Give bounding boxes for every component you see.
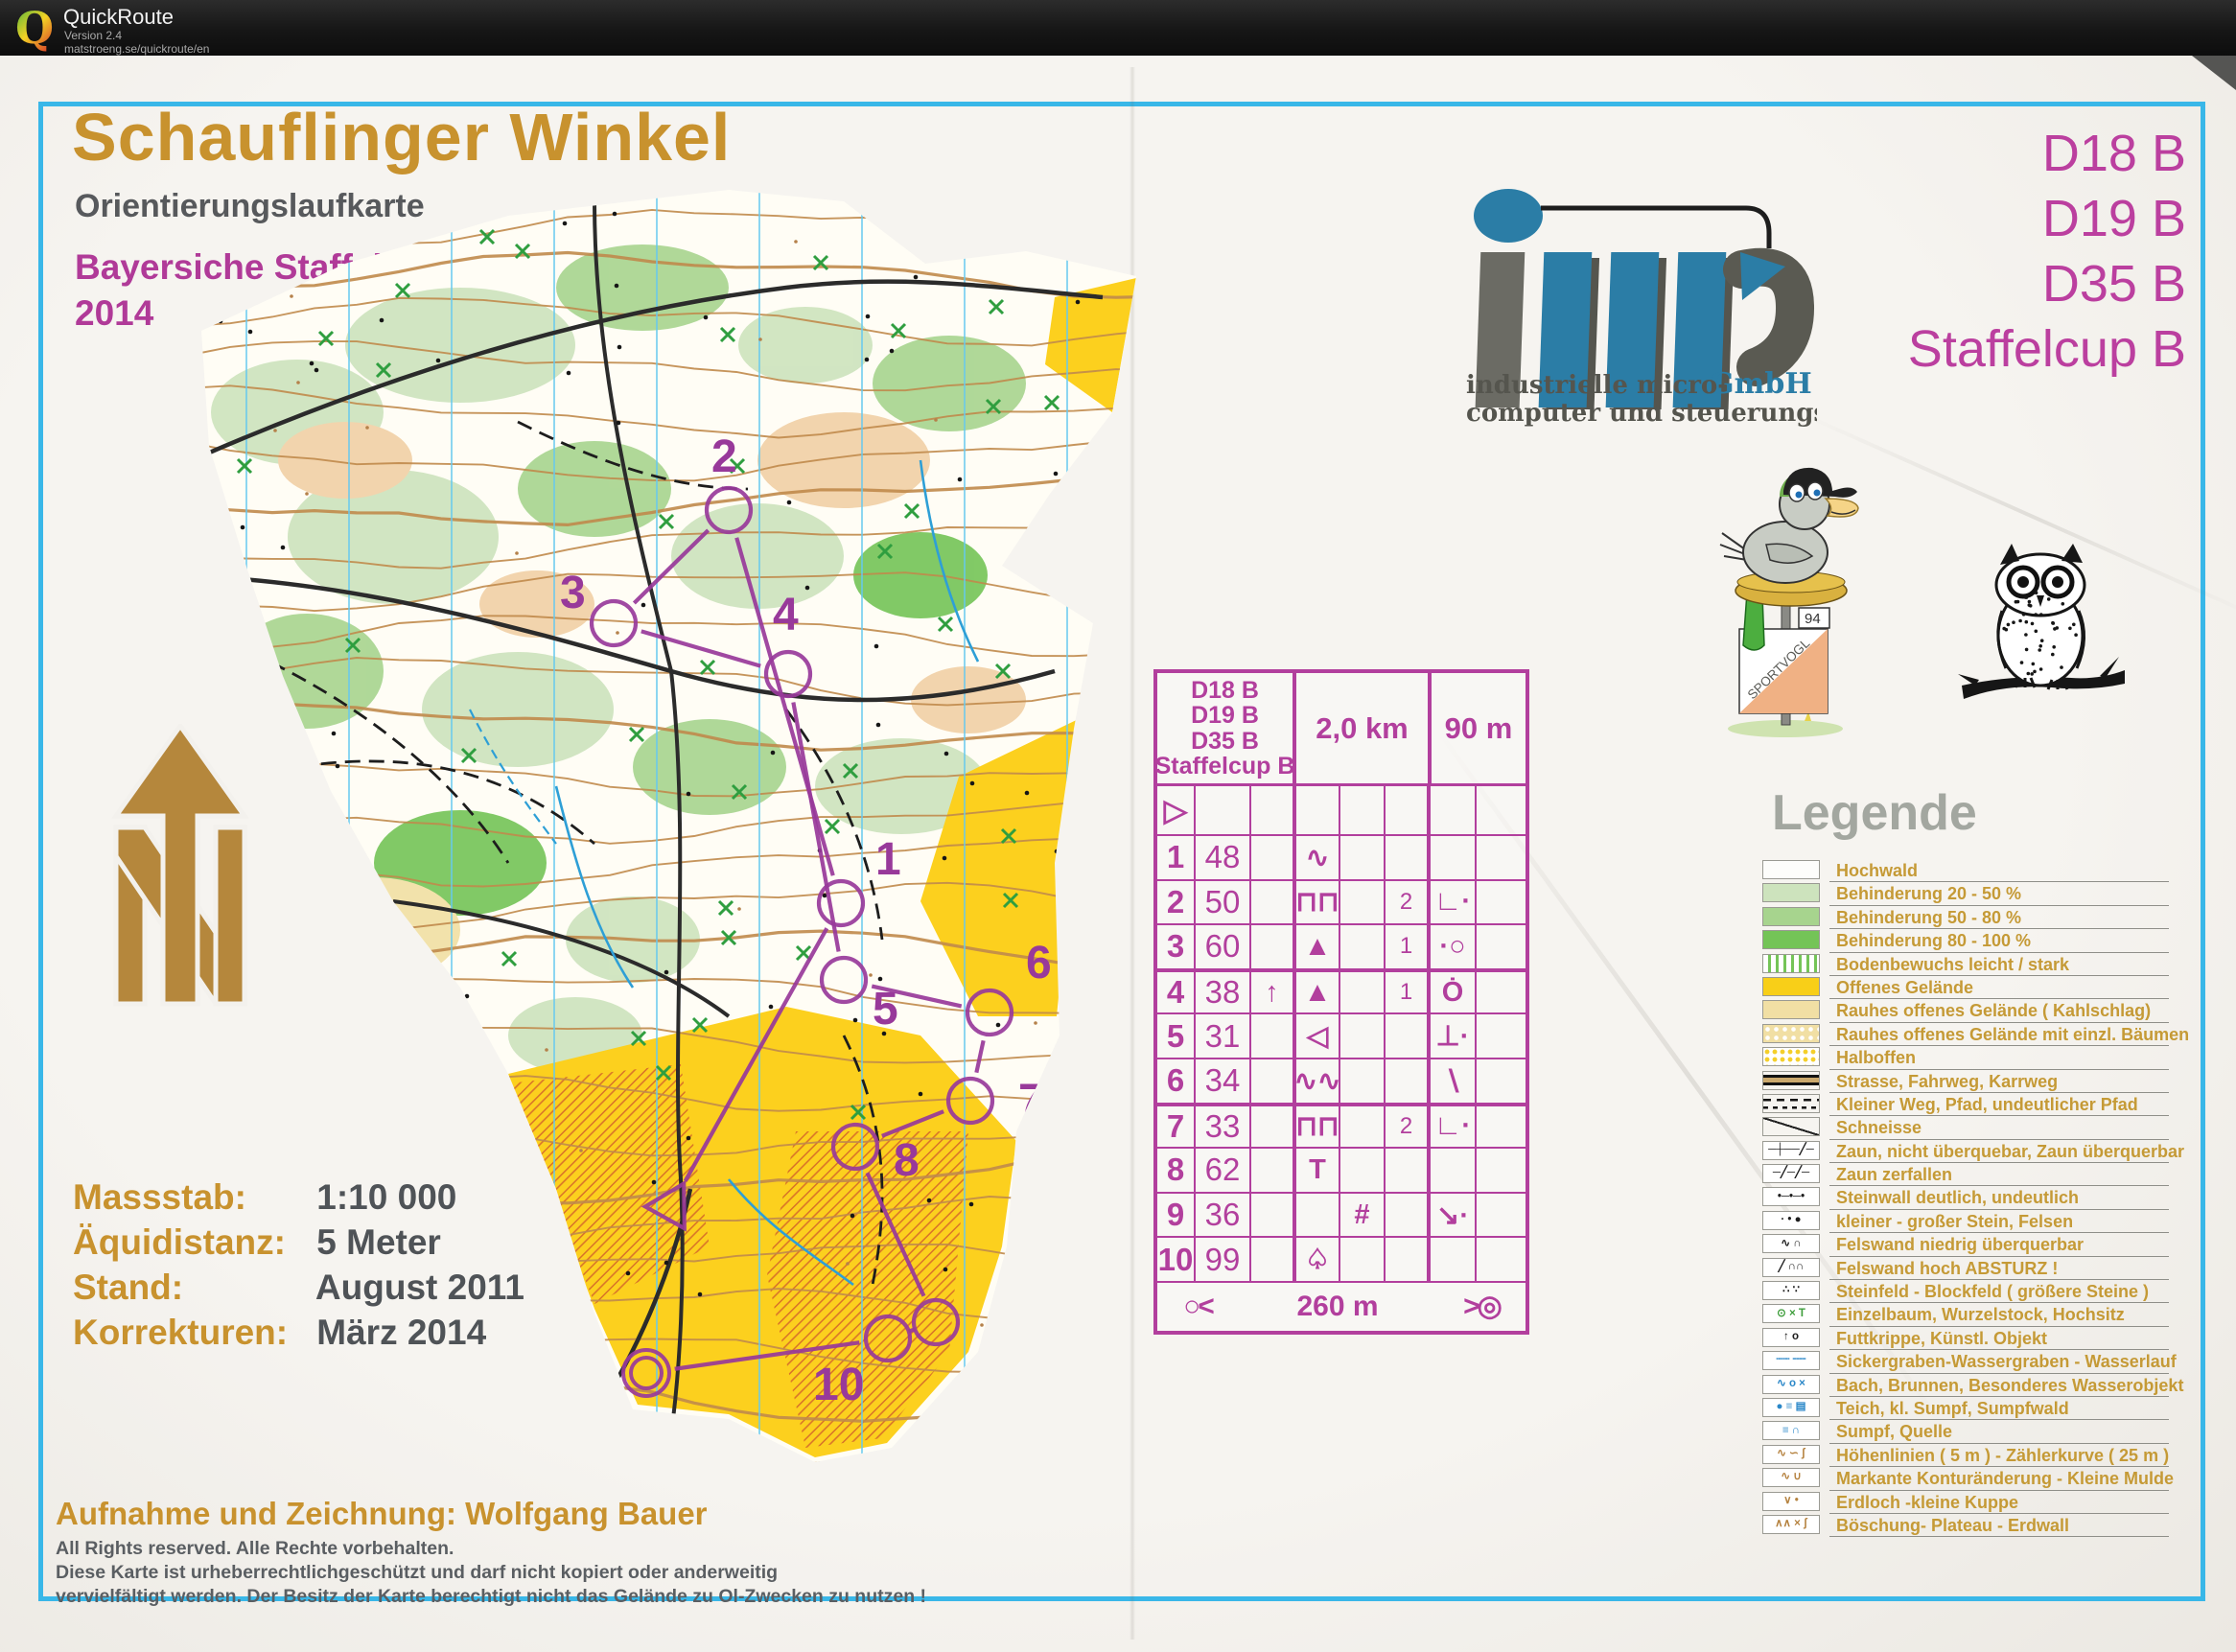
legend-swatch — [1762, 1047, 1820, 1066]
legend-label: Schneisse — [1836, 1118, 1922, 1138]
control-number: 5 — [1157, 1012, 1196, 1058]
class-label: D18 B — [1908, 121, 2186, 186]
symbol-cell-h — [1477, 879, 1526, 924]
svg-text:1: 1 — [875, 834, 901, 885]
legend-swatch: ∧∧ × ʃ — [1762, 1515, 1820, 1534]
app-url: matstroeng.se/quickroute/en — [64, 42, 209, 56]
legend-label: Felswand hoch ABSTURZ ! — [1836, 1259, 2058, 1279]
legend-swatch — [1762, 883, 1820, 902]
map-info-row: Äquidistanz: 5 Meter — [73, 1222, 524, 1268]
control-row: 2 50 ⊓⊓ 2 ∟· — [1157, 879, 1526, 924]
symbol-cell-d: ⊓⊓ — [1296, 879, 1340, 924]
quickroute-logo-icon: Q — [15, 2, 54, 54]
symbol-cell-h — [1477, 1192, 1526, 1237]
symbol-cell-h — [1477, 1147, 1526, 1192]
legend-swatch — [1762, 1094, 1820, 1113]
svg-text:5: 5 — [873, 984, 898, 1035]
info-label: Korrekturen: — [73, 1313, 307, 1353]
symbol-cell-e — [1340, 968, 1386, 1013]
control-row: 1 48 ∿ — [1157, 834, 1526, 879]
legend-item: ∿ ∽ ʃ Höhenlinien ( 5 m ) - Zählerkurve … — [1762, 1444, 2169, 1467]
map-info-row: Stand: August 2011 — [73, 1268, 524, 1313]
info-label: Stand: — [73, 1268, 307, 1308]
control-code: 62 — [1196, 1147, 1251, 1192]
legend-swatch — [1762, 1024, 1820, 1043]
legend-label: Sumpf, Quelle — [1836, 1422, 1952, 1442]
legend-label: Futtkrippe, Künstl. Objekt — [1836, 1329, 2047, 1349]
legend-swatch: ╱ ∩∩ — [1762, 1258, 1820, 1277]
legend-swatch: ≡ ∩ — [1762, 1421, 1820, 1440]
legend-item: Halboffen — [1762, 1046, 2169, 1069]
symbol-cell-c: ↑ — [1251, 968, 1296, 1013]
symbol-cell-d: ▲ — [1296, 923, 1340, 968]
control-number: 4 — [1157, 968, 1196, 1013]
legend-swatch: ─┼──╱─ — [1762, 1141, 1820, 1160]
class-label: D19 B — [1908, 186, 2186, 251]
ims-line2: computer und steuerungstechnik — [1466, 399, 1817, 427]
symbol-cell-e — [1340, 1103, 1386, 1148]
legend-item: Behinderung 80 - 100 % — [1762, 929, 2169, 952]
symbol-cell-g: ⊥· — [1431, 1012, 1477, 1058]
symbol-cell-c — [1251, 1236, 1296, 1281]
legend-swatch — [1762, 954, 1820, 973]
map-title: Schauflinger Winkel — [72, 99, 731, 175]
legend-label: Hochwald — [1836, 861, 1918, 881]
info-value: 1:10 000 — [316, 1177, 456, 1217]
legend-item: Rauhes offenes Gelände mit einzl. Bäumen — [1762, 1023, 2169, 1046]
symbol-cell-h — [1477, 968, 1526, 1013]
legend-label: Markante Konturänderung - Kleine Mulde — [1836, 1469, 2174, 1489]
copyright-block: All Rights reserved. Alle Rechte vorbeha… — [56, 1537, 926, 1609]
legend-swatch: ● ≡ ▤ — [1762, 1398, 1820, 1417]
symbol-cell-g — [1431, 1147, 1477, 1192]
legend-label: Behinderung 50 - 80 % — [1836, 908, 2021, 928]
symbol-cell-g: ↘· — [1431, 1192, 1477, 1237]
header-class-label: Staffelcup B — [1155, 754, 1295, 779]
legend-swatch: ∿ ∩ — [1762, 1234, 1820, 1253]
legend-label: kleiner - großer Stein, Felsen — [1836, 1212, 2073, 1232]
legend-item: Behinderung 50 - 80 % — [1762, 906, 2169, 929]
header-class-label: D19 B — [1191, 703, 1259, 729]
symbol-cell-d: ◁ — [1296, 1012, 1340, 1058]
legend-label: Einzelbaum, Wurzelstock, Hochsitz — [1836, 1305, 2125, 1325]
legend-swatch — [1762, 1000, 1820, 1019]
symbol-cell-d: ⊓⊓ — [1296, 1103, 1340, 1148]
control-number: 2 — [1157, 879, 1196, 924]
legend-swatch: ∨ • — [1762, 1492, 1820, 1511]
symbol-cell-f: 1 — [1386, 923, 1431, 968]
legend-heading: Legende — [1772, 784, 1977, 842]
ims-line1: industrielle micro- — [1466, 371, 1728, 400]
symbol-cell-d: ▲ — [1296, 968, 1340, 1013]
symbol-cell-f — [1386, 1192, 1431, 1237]
legend-label: Sickergraben-Wassergraben - Wasserlauf — [1836, 1352, 2177, 1372]
legend-item: ↑ o Futtkrippe, Künstl. Objekt — [1762, 1327, 2169, 1350]
course-distance: 2,0 km — [1296, 673, 1432, 783]
legend-item: ● ≡ ▤ Teich, kl. Sumpf, Sumpfwald — [1762, 1397, 2169, 1420]
legend-item: ∴ ∵ Steinfeld - Blockfeld ( größere Stei… — [1762, 1280, 2169, 1303]
finish-left-symbol: ○< — [1157, 1283, 1238, 1331]
legend-label: Strasse, Fahrweg, Karrweg — [1836, 1072, 2058, 1092]
legend-label: Felswand niedrig überquerbar — [1836, 1235, 2084, 1255]
control-row: 7 33 ⊓⊓ 2 ∟· — [1157, 1103, 1526, 1148]
info-label: Massstab: — [73, 1177, 307, 1218]
control-code: 33 — [1196, 1103, 1251, 1148]
control-number: 3 — [1157, 923, 1196, 968]
control-number: 9 — [1157, 1192, 1196, 1237]
legend-label: Behinderung 20 - 50 % — [1836, 884, 2021, 904]
header-class-label: D35 B — [1191, 729, 1259, 755]
symbol-cell-g: ∟· — [1431, 1103, 1477, 1148]
symbol-cell-c — [1251, 1192, 1296, 1237]
symbol-cell-e — [1340, 1058, 1386, 1103]
north-arrow-icon — [108, 724, 252, 1008]
header-class-label: D18 B — [1191, 678, 1259, 704]
legend-label: Bach, Brunnen, Besonderes Wasserobjekt — [1836, 1376, 2183, 1396]
legend-label: Steinwall deutlich, undeutlich — [1836, 1188, 2079, 1208]
control-code: 48 — [1196, 834, 1251, 879]
legend-label: Zaun, nicht überquebar, Zaun überquerbar — [1836, 1142, 2184, 1162]
symbol-cell-f — [1386, 1236, 1431, 1281]
symbol-cell-g: ∟· — [1431, 879, 1477, 924]
symbol-cell-h — [1477, 1058, 1526, 1103]
copyright-line: All Rights reserved. Alle Rechte vorbeha… — [56, 1537, 926, 1561]
symbol-cell-c — [1251, 1147, 1296, 1192]
legend-swatch — [1762, 907, 1820, 926]
start-symbol: ▷ — [1157, 786, 1196, 834]
control-row: 3 60 ▲ 1 ·○ — [1157, 923, 1526, 968]
legend-item: ≡ ∩ Sumpf, Quelle — [1762, 1420, 2169, 1443]
symbol-cell-h — [1477, 1012, 1526, 1058]
finish-distance: 260 m — [1238, 1283, 1437, 1331]
symbol-cell-h — [1477, 1103, 1526, 1148]
class-label: Staffelcup B — [1908, 316, 2186, 382]
control-code: 60 — [1196, 923, 1251, 968]
symbol-cell-h — [1477, 923, 1526, 968]
symbol-cell-g: ·○ — [1431, 923, 1477, 968]
owl-mascot — [1956, 542, 2129, 719]
map-info-row: Korrekturen: März 2014 — [73, 1313, 524, 1358]
legend-swatch: ∴ ∵ — [1762, 1281, 1820, 1300]
symbol-cell-e — [1340, 923, 1386, 968]
legend-item: ∿ ∩ Felswand niedrig überquerbar — [1762, 1233, 2169, 1256]
symbol-cell-c — [1251, 834, 1296, 879]
finish-row: ○< 260 m >◎ — [1157, 1281, 1526, 1331]
legend-swatch — [1762, 1117, 1820, 1136]
start-row: ▷ — [1157, 786, 1526, 834]
symbol-cell-f — [1386, 1012, 1431, 1058]
symbol-cell-c — [1251, 1012, 1296, 1058]
legend-label: Böschung- Plateau - Erdwall — [1836, 1516, 2069, 1536]
svg-text:10: 10 — [813, 1360, 864, 1410]
symbol-cell-f: 2 — [1386, 1103, 1431, 1148]
control-number: 1 — [1157, 834, 1196, 879]
legend-swatch: ┄┄ ╌╌ — [1762, 1351, 1820, 1370]
legend-item: Bodenbewuchs leicht / stark — [1762, 953, 2169, 976]
legend-swatch: ∿ ∽ ʃ — [1762, 1445, 1820, 1464]
legend-item: · • ● kleiner - großer Stein, Felsen — [1762, 1210, 2169, 1233]
legend-swatch — [1762, 930, 1820, 949]
control-number: 6 — [1157, 1058, 1196, 1103]
symbol-cell-e — [1340, 1236, 1386, 1281]
finish-right-symbol: >◎ — [1437, 1283, 1526, 1331]
symbol-cell-c — [1251, 1058, 1296, 1103]
svg-text:4: 4 — [773, 590, 799, 640]
symbol-cell-g: ∖ — [1431, 1058, 1477, 1103]
legend-swatch: ─╱─╱─ — [1762, 1164, 1820, 1183]
legend-item: •─•─• Steinwall deutlich, undeutlich — [1762, 1186, 2169, 1209]
legend-label: Kleiner Weg, Pfad, undeutlicher Pfad — [1836, 1095, 2138, 1115]
symbol-cell-g — [1431, 1236, 1477, 1281]
symbol-cell-h — [1477, 1236, 1526, 1281]
legend-item: Hochwald — [1762, 859, 2169, 882]
symbol-cell-e — [1340, 879, 1386, 924]
ims-dot — [1474, 189, 1543, 243]
legend-swatch: ⊙ × T — [1762, 1304, 1820, 1323]
legend-label: Steinfeld - Blockfeld ( größere Steine ) — [1836, 1282, 2149, 1302]
info-label: Äquidistanz: — [73, 1222, 307, 1263]
control-code: 34 — [1196, 1058, 1251, 1103]
legend-label: Bodenbewuchs leicht / stark — [1836, 955, 2069, 975]
app-title: QuickRoute — [63, 5, 174, 30]
symbol-cell-f — [1386, 1147, 1431, 1192]
header-classes: D18 BD19 BD35 BStaffelcup B — [1157, 673, 1296, 783]
author-line: Aufnahme und Zeichnung: Wolfgang Bauer — [56, 1496, 708, 1532]
map-info-block: Massstab: 1:10 000 Äquidistanz: 5 Meter … — [73, 1177, 524, 1358]
symbol-cell-f: 2 — [1386, 879, 1431, 924]
quickroute-header-bar: Q QuickRoute Version 2.4 matstroeng.se/q… — [0, 0, 2236, 56]
legend-label: Höhenlinien ( 5 m ) - Zählerkurve ( 25 m… — [1836, 1446, 2169, 1466]
svg-text:2: 2 — [711, 431, 737, 482]
course-climb: 90 m — [1432, 673, 1526, 783]
legend-label: Erdloch -kleine Kuppe — [1836, 1493, 2018, 1513]
symbol-cell-d — [1296, 1192, 1340, 1237]
copyright-line: vervielfältigt werden. Der Besitz der Ka… — [56, 1585, 926, 1609]
ims-logo: GmbH industrielle micro- computer und st… — [1453, 177, 1817, 427]
symbol-cell-c — [1251, 923, 1296, 968]
duck-mascot: SPORTVOGL 94 — [1716, 449, 1860, 741]
control-description-table: D18 BD19 BD35 BStaffelcup B 2,0 km 90 m … — [1153, 669, 1529, 1335]
svg-text:3: 3 — [560, 568, 586, 618]
app-version: Version 2.4 — [64, 29, 122, 42]
control-code: 38 — [1196, 968, 1251, 1013]
control-row: 5 31 ◁ ⊥· — [1157, 1012, 1526, 1058]
svg-text:9: 9 — [976, 1338, 1002, 1388]
control-row: 8 62 T — [1157, 1147, 1526, 1192]
legend-label: Rauhes offenes Gelände mit einzl. Bäumen — [1836, 1025, 2189, 1045]
class-label: D35 B — [1908, 251, 2186, 316]
copyright-line: Diese Karte ist urheberrechtlichgeschütz… — [56, 1561, 926, 1585]
symbol-cell-f — [1386, 834, 1431, 879]
legend-swatch: ∿ o × — [1762, 1375, 1820, 1394]
legend-item: ─╱─╱─ Zaun zerfallen — [1762, 1163, 2169, 1186]
info-value: August 2011 — [315, 1268, 524, 1307]
symbol-cell-c — [1251, 1103, 1296, 1148]
legend-swatch: ∿ ∪ — [1762, 1468, 1820, 1487]
legend-item: ╱ ∩∩ Felswand hoch ABSTURZ ! — [1762, 1257, 2169, 1280]
symbol-cell-f — [1386, 1058, 1431, 1103]
info-value: 5 Meter — [316, 1222, 441, 1262]
legend: Hochwald Behinderung 20 - 50 % Behinderu… — [1762, 859, 2169, 1537]
svg-text:6: 6 — [1026, 938, 1052, 989]
legend-item: Behinderung 20 - 50 % — [1762, 882, 2169, 905]
legend-item: ∨ • Erdloch -kleine Kuppe — [1762, 1491, 2169, 1514]
legend-item: Kleiner Weg, Pfad, undeutlicher Pfad — [1762, 1093, 2169, 1116]
symbol-cell-h — [1477, 834, 1526, 879]
control-row: 9 36 # ↘· — [1157, 1192, 1526, 1237]
legend-label: Teich, kl. Sumpf, Sumpfwald — [1836, 1399, 2069, 1419]
legend-label: Zaun zerfallen — [1836, 1165, 1952, 1185]
symbol-cell-d: ♤ — [1296, 1236, 1340, 1281]
control-row: 10 99 ♤ — [1157, 1236, 1526, 1281]
class-list: D18 BD19 BD35 BStaffelcup B — [1908, 121, 2186, 382]
symbol-cell-d: ∿ — [1296, 834, 1340, 879]
symbol-cell-d: ∿∿ — [1296, 1058, 1340, 1103]
legend-swatch — [1762, 1071, 1820, 1090]
legend-underline — [1829, 1536, 2169, 1537]
symbol-cell-e: # — [1340, 1192, 1386, 1237]
control-number: 8 — [1157, 1147, 1196, 1192]
legend-item: ⊙ × T Einzelbaum, Wurzelstock, Hochsitz — [1762, 1303, 2169, 1326]
legend-item: Strasse, Fahrweg, Karrweg — [1762, 1070, 2169, 1093]
symbol-cell-f: 1 — [1386, 968, 1431, 1013]
control-code: 31 — [1196, 1012, 1251, 1058]
legend-label: Halboffen — [1836, 1048, 1916, 1068]
control-rows: 1 48 ∿ 2 50 ⊓⊓ 2 ∟· 3 — [1157, 834, 1526, 1281]
legend-item: ∿ ∪ Markante Konturänderung - Kleine Mul… — [1762, 1467, 2169, 1490]
legend-item: Offenes Gelände — [1762, 976, 2169, 999]
legend-item: Rauhes offenes Gelände ( Kahlschlag) — [1762, 999, 2169, 1022]
svg-text:7: 7 — [1018, 1076, 1044, 1127]
legend-swatch: •─•─• — [1762, 1187, 1820, 1206]
control-code: 99 — [1196, 1236, 1251, 1281]
legend-label: Behinderung 80 - 100 % — [1836, 931, 2031, 951]
map-info-row: Massstab: 1:10 000 — [73, 1177, 524, 1222]
control-number: 7 — [1157, 1103, 1196, 1148]
legend-item: ∿ o × Bach, Brunnen, Besonderes Wasserob… — [1762, 1374, 2169, 1397]
symbol-cell-e — [1340, 1012, 1386, 1058]
control-row: 6 34 ∿∿ ∖ — [1157, 1058, 1526, 1103]
legend-item: ┄┄ ╌╌ Sickergraben-Wassergraben - Wasser… — [1762, 1350, 2169, 1373]
control-number: 10 — [1157, 1236, 1196, 1281]
info-value: März 2014 — [316, 1313, 486, 1352]
legend-swatch: · • ● — [1762, 1211, 1820, 1230]
control-table-header: D18 BD19 BD35 BStaffelcup B 2,0 km 90 m — [1157, 673, 1526, 786]
legend-item: ─┼──╱─ Zaun, nicht überquebar, Zaun über… — [1762, 1140, 2169, 1163]
legend-item: Schneisse — [1762, 1116, 2169, 1139]
legend-swatch — [1762, 860, 1820, 879]
symbol-cell-e — [1340, 1147, 1386, 1192]
control-row: 4 38 ↑ ▲ 1 Ȯ — [1157, 968, 1526, 1013]
legend-item: ∧∧ × ʃ Böschung- Plateau - Erdwall — [1762, 1514, 2169, 1537]
control-code: 36 — [1196, 1192, 1251, 1237]
symbol-cell-c — [1251, 879, 1296, 924]
flag-number: 94 — [1805, 611, 1821, 627]
symbol-cell-d: T — [1296, 1147, 1340, 1192]
svg-text:8: 8 — [894, 1135, 920, 1186]
control-code: 50 — [1196, 879, 1251, 924]
symbol-cell-e — [1340, 834, 1386, 879]
legend-swatch: ↑ o — [1762, 1328, 1820, 1347]
symbol-cell-g — [1431, 834, 1477, 879]
legend-label: Rauhes offenes Gelände ( Kahlschlag) — [1836, 1001, 2151, 1021]
legend-swatch — [1762, 977, 1820, 996]
symbol-cell-g: Ȯ — [1431, 968, 1477, 1013]
legend-label: Offenes Gelände — [1836, 978, 1973, 998]
